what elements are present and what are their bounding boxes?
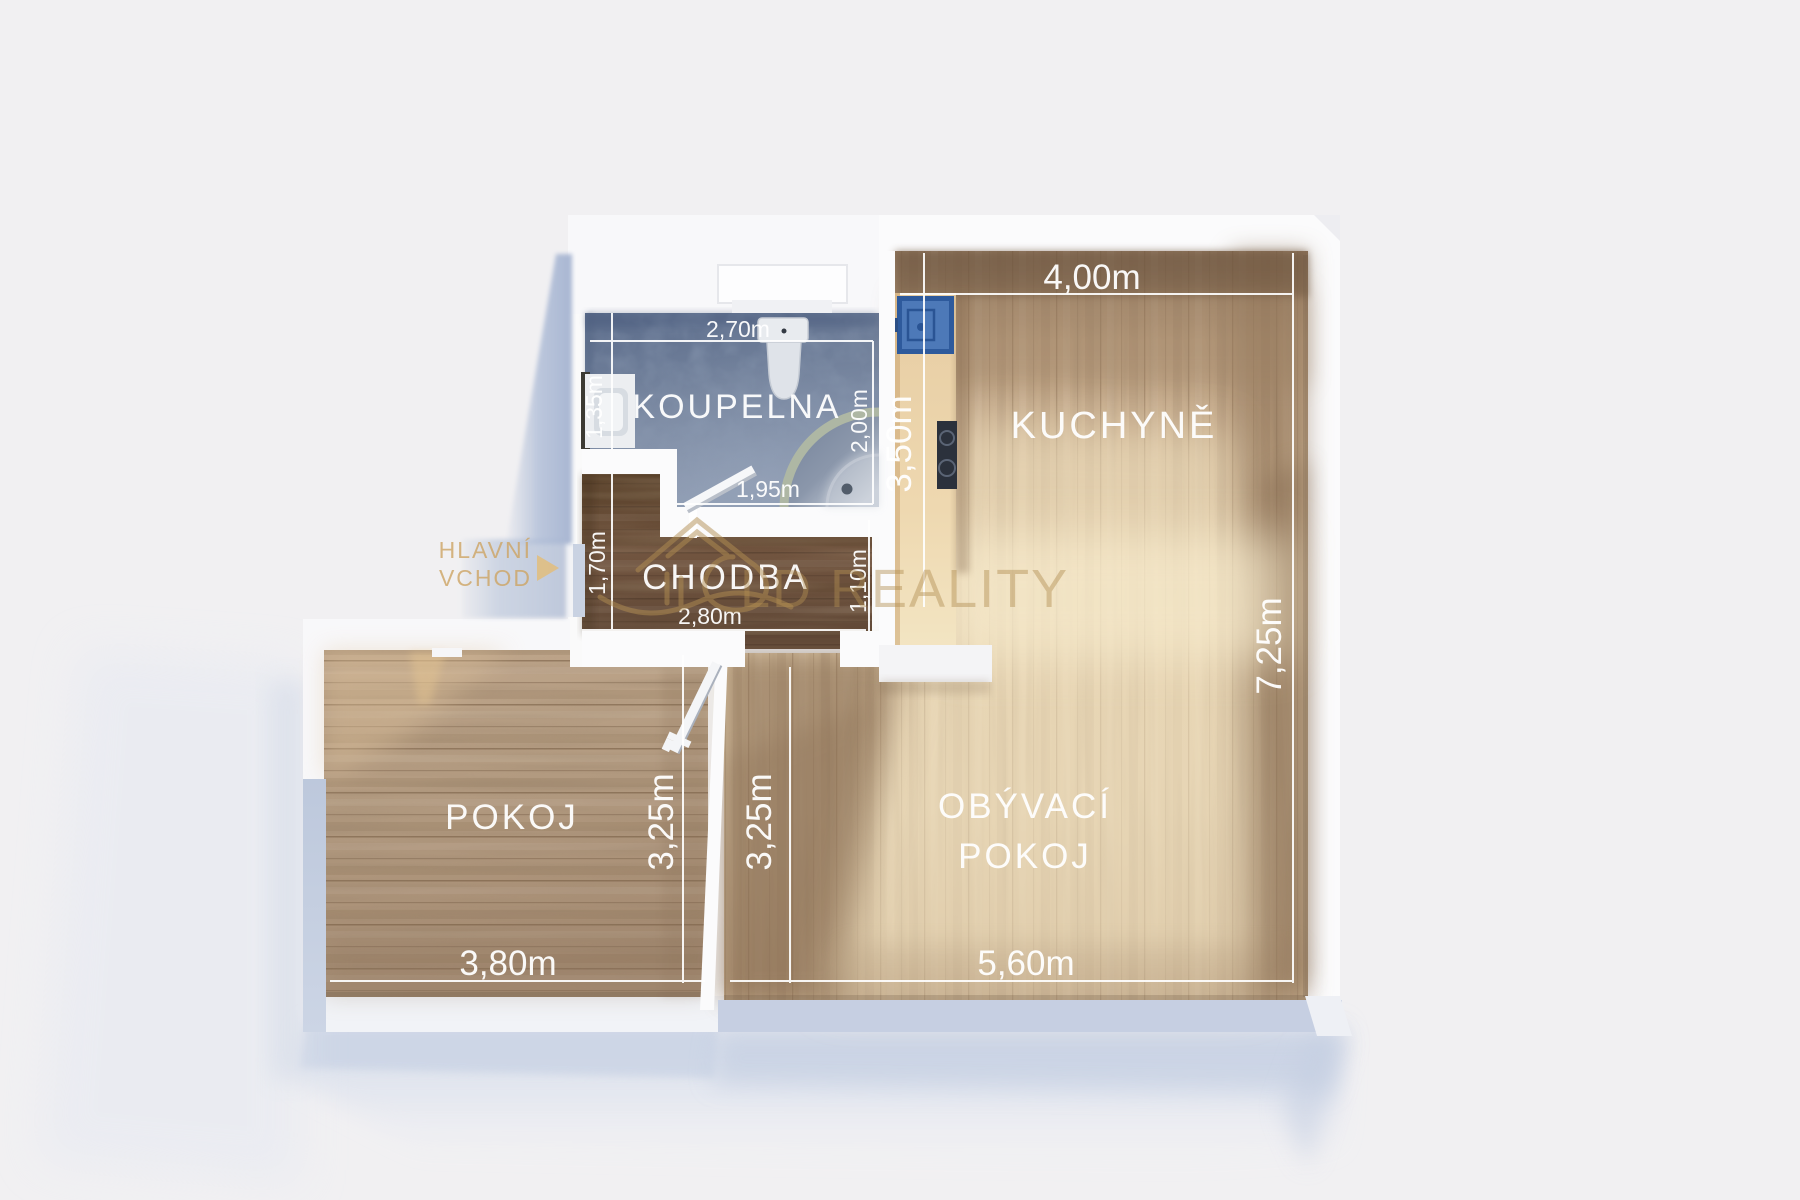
svg-text:4,00m: 4,00m <box>1043 258 1140 297</box>
svg-text:3,50m: 3,50m <box>880 395 919 492</box>
svg-text:KOUPELNA: KOUPELNA <box>632 388 841 426</box>
svg-text:KUCHYNĚ: KUCHYNĚ <box>1011 404 1218 447</box>
svg-text:LD REALITY: LD REALITY <box>740 559 1069 619</box>
svg-text:POKOJ: POKOJ <box>958 837 1092 876</box>
svg-text:7,25m: 7,25m <box>1250 597 1289 694</box>
svg-text:OBÝVACÍ: OBÝVACÍ <box>938 787 1112 826</box>
svg-text:2,00m: 2,00m <box>846 389 872 453</box>
svg-text:1,35m: 1,35m <box>581 375 607 439</box>
svg-text:1,70m: 1,70m <box>584 531 610 595</box>
svg-text:3,80m: 3,80m <box>459 944 556 983</box>
svg-text:POKOJ: POKOJ <box>445 798 579 837</box>
svg-text:2,70m: 2,70m <box>706 316 770 342</box>
svg-text:VCHOD: VCHOD <box>439 565 532 591</box>
svg-text:HLAVNÍ: HLAVNÍ <box>439 537 532 563</box>
svg-text:3,25m: 3,25m <box>740 773 779 870</box>
svg-text:1,95m: 1,95m <box>736 476 800 502</box>
svg-text:5,60m: 5,60m <box>977 944 1074 983</box>
svg-text:3,25m: 3,25m <box>642 773 681 870</box>
